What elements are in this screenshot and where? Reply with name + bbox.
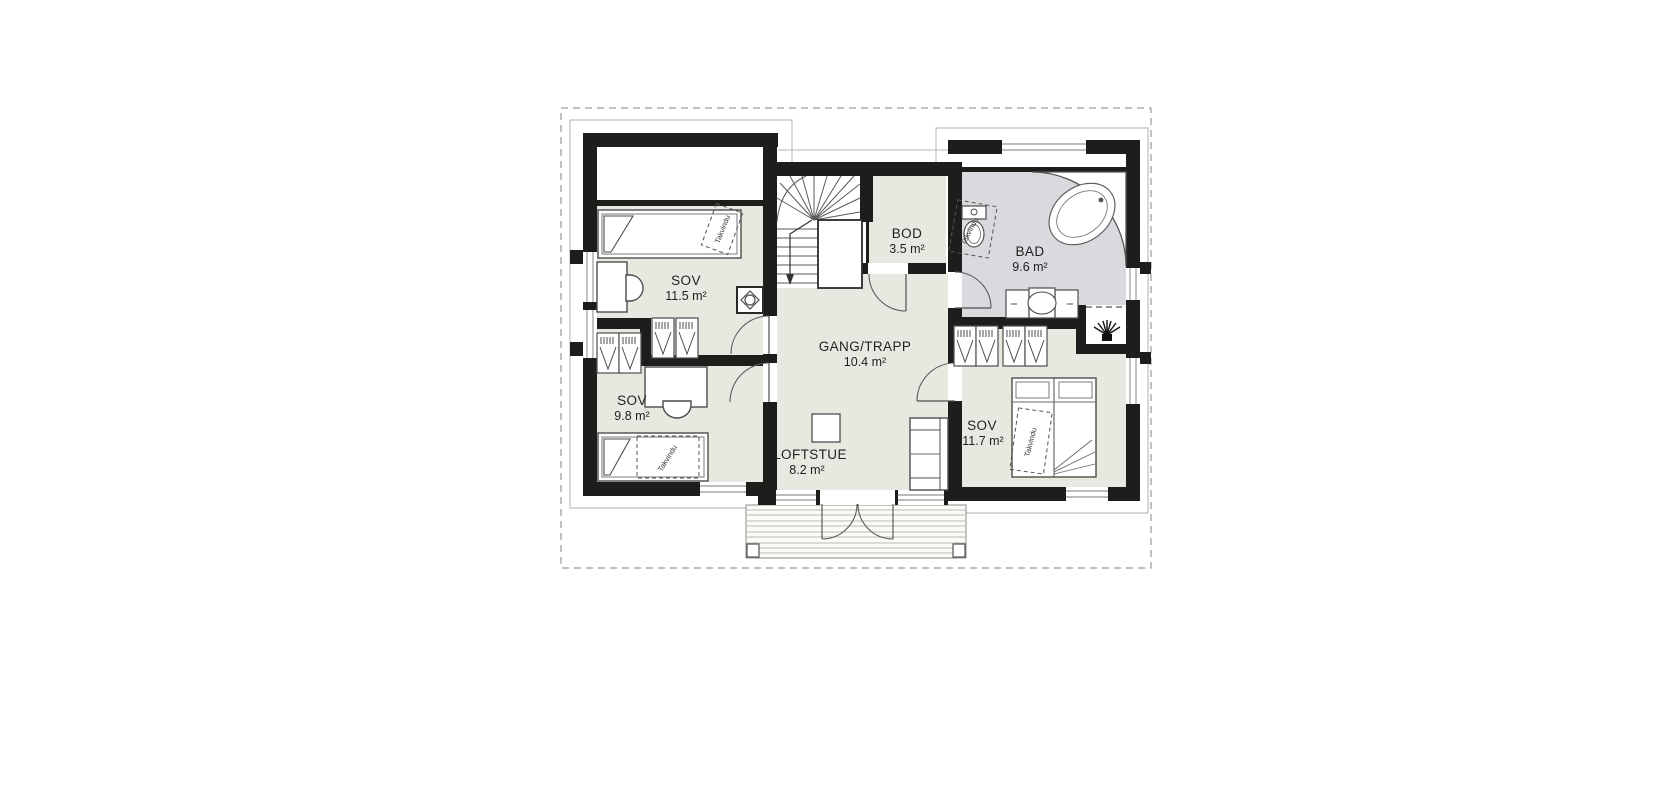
svg-text:8.2 m²: 8.2 m² [789, 463, 824, 477]
svg-text:BAD: BAD [1016, 244, 1045, 259]
floor-plan-page: Takvindu Takvindu Takvindu Takvindu SOV … [0, 0, 1670, 800]
chimney-icon [737, 287, 763, 313]
window-icon [700, 482, 746, 496]
svg-text:GANG/TRAPP: GANG/TRAPP [819, 339, 912, 354]
window-icon [898, 490, 944, 505]
svg-text:BOD: BOD [892, 226, 922, 241]
svg-text:SOV: SOV [617, 393, 647, 408]
wardrobe-icon [976, 326, 998, 366]
wardrobe-icon [1003, 326, 1025, 366]
sink-vanity-icon [1006, 288, 1078, 318]
wardrobe-icon [676, 318, 698, 358]
window-icon [1126, 268, 1140, 300]
svg-text:9.8 m²: 9.8 m² [614, 409, 649, 423]
wardrobe-icon [597, 333, 619, 373]
svg-text:10.4 m²: 10.4 m² [844, 355, 886, 369]
wardrobe-icon [652, 318, 674, 358]
wardrobe-icon [1025, 326, 1047, 366]
window-icon [1002, 140, 1086, 154]
sofa-icon [910, 418, 948, 490]
window-icon [583, 252, 597, 302]
window-icon [583, 310, 597, 358]
window-icon [1066, 487, 1108, 501]
svg-text:SOV: SOV [967, 418, 997, 433]
coffee-table-icon [812, 414, 840, 442]
window-icon [776, 490, 816, 505]
svg-text:9.6 m²: 9.6 m² [1012, 260, 1047, 274]
wardrobe-icon [954, 326, 976, 366]
svg-text:SOV: SOV [671, 273, 701, 288]
svg-text:11.5 m²: 11.5 m² [665, 289, 706, 303]
wardrobe-icon [619, 333, 641, 373]
window-icon [1126, 358, 1140, 404]
bed-icon [598, 433, 708, 481]
bed-icon [1012, 378, 1096, 477]
svg-text:3.5 m²: 3.5 m² [889, 242, 924, 256]
desk-icon [597, 262, 627, 312]
floor-plan-drawing: Takvindu Takvindu Takvindu Takvindu SOV … [0, 0, 1670, 800]
svg-text:LOFTSTUE: LOFTSTUE [773, 447, 847, 462]
svg-text:11.7 m²: 11.7 m² [962, 434, 1003, 448]
